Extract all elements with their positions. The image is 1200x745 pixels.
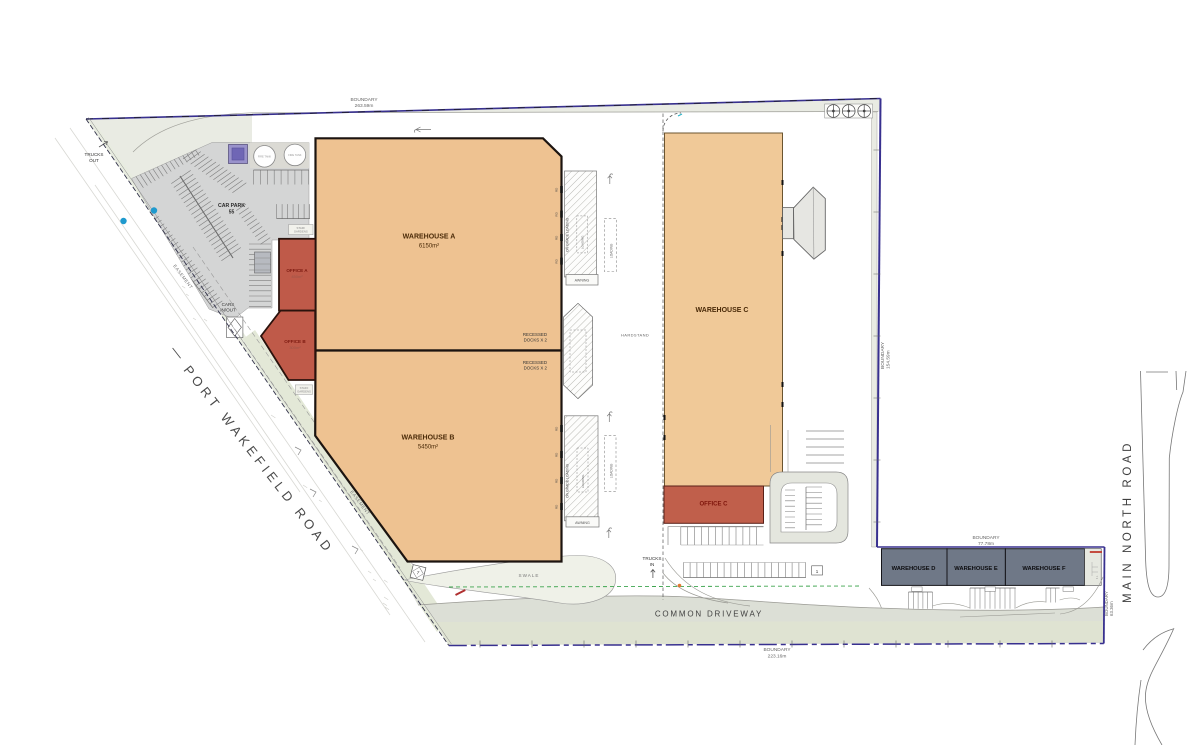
svg-text:CAR PARK: CAR PARK bbox=[218, 203, 245, 209]
svg-text:DOCKS X 2: DOCKS X 2 bbox=[524, 366, 548, 371]
svg-text:63.36m: 63.36m bbox=[1109, 601, 1114, 616]
svg-text:5450m²: 5450m² bbox=[418, 445, 438, 451]
svg-text:COMMON DRIVEWAY: COMMON DRIVEWAY bbox=[655, 610, 763, 619]
svg-text:77.78m: 77.78m bbox=[978, 541, 994, 547]
svg-text:WAREHOUSE C: WAREHOUSE C bbox=[696, 307, 749, 314]
svg-text:AWNING: AWNING bbox=[575, 521, 590, 525]
svg-text:ON GRADE LOADING: ON GRADE LOADING bbox=[566, 463, 570, 498]
svg-text:LOADING: LOADING bbox=[610, 243, 614, 258]
svg-text:CARS: CARS bbox=[222, 302, 235, 307]
svg-text:RECESSED: RECESSED bbox=[523, 332, 547, 337]
svg-text:BOUNDARY: BOUNDARY bbox=[972, 535, 1000, 541]
svg-text:263.59m: 263.59m bbox=[355, 103, 374, 109]
svg-text:LOADING: LOADING bbox=[610, 463, 614, 478]
svg-text:6150m²: 6150m² bbox=[419, 244, 439, 250]
svg-text:SWALE: SWALE bbox=[519, 573, 540, 578]
svg-text:IN: IN bbox=[650, 562, 655, 567]
svg-text:LOADING: LOADING bbox=[581, 474, 585, 488]
svg-text:GARDENS: GARDENS bbox=[294, 230, 308, 234]
svg-text:LOADING: LOADING bbox=[581, 235, 585, 249]
svg-text:MAIN NORTH ROAD: MAIN NORTH ROAD bbox=[1122, 440, 1134, 603]
svg-text:OUT: OUT bbox=[89, 158, 99, 163]
svg-text:DOCKS X 2: DOCKS X 2 bbox=[524, 338, 548, 343]
svg-text:OFFICE C: OFFICE C bbox=[700, 502, 729, 508]
svg-text:WAREHOUSE B: WAREHOUSE B bbox=[402, 435, 455, 442]
svg-text:RECESSED: RECESSED bbox=[523, 360, 547, 365]
svg-text:TRUCKS: TRUCKS bbox=[643, 556, 662, 561]
svg-text:AWNING: AWNING bbox=[575, 279, 590, 283]
svg-text:WAREHOUSE F: WAREHOUSE F bbox=[1022, 566, 1066, 572]
svg-text:450m²: 450m² bbox=[291, 274, 303, 279]
svg-text:223.16m: 223.16m bbox=[768, 654, 787, 660]
svg-text:GARDENS: GARDENS bbox=[297, 390, 311, 394]
svg-text:WAREHOUSE E: WAREHOUSE E bbox=[954, 566, 998, 572]
svg-text:BOUNDARY: BOUNDARY bbox=[350, 97, 378, 103]
svg-text:BOUNDARY: BOUNDARY bbox=[763, 647, 791, 653]
svg-text:FIRE TANK: FIRE TANK bbox=[258, 155, 272, 159]
svg-text:WAREHOUSE A: WAREHOUSE A bbox=[403, 234, 456, 241]
svg-text:OFFICE B: OFFICE B bbox=[284, 339, 306, 344]
svg-text:154.59m: 154.59m bbox=[886, 350, 892, 369]
svg-text:HARDSTAND: HARDSTAND bbox=[621, 333, 649, 338]
svg-text:55: 55 bbox=[229, 210, 235, 216]
svg-text:BOUNDARY: BOUNDARY bbox=[880, 341, 886, 369]
svg-text:FIRE TANK: FIRE TANK bbox=[288, 153, 302, 157]
svg-text:WAREHOUSE D: WAREHOUSE D bbox=[892, 566, 936, 572]
svg-text:OFFICE A: OFFICE A bbox=[286, 268, 308, 273]
svg-text:300m²: 300m² bbox=[289, 345, 301, 350]
svg-text:TRUCKS: TRUCKS bbox=[85, 152, 104, 157]
svg-text:ON GRADE LOADING: ON GRADE LOADING bbox=[566, 217, 570, 252]
